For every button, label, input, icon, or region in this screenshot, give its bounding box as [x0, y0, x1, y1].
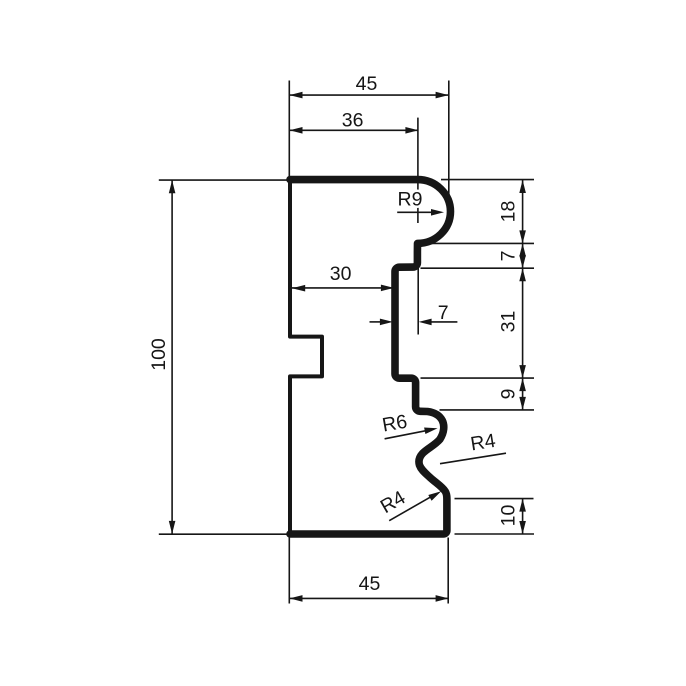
svg-text:100: 100: [148, 338, 170, 371]
svg-text:18: 18: [498, 201, 520, 223]
svg-text:9: 9: [498, 389, 520, 400]
svg-text:R6: R6: [381, 411, 409, 437]
svg-text:10: 10: [498, 505, 520, 527]
svg-text:45: 45: [356, 73, 378, 95]
svg-text:7: 7: [438, 302, 449, 324]
svg-text:30: 30: [330, 263, 352, 285]
svg-text:36: 36: [342, 109, 364, 131]
svg-text:R9: R9: [398, 189, 423, 211]
svg-text:R4: R4: [377, 486, 410, 518]
svg-text:R4: R4: [469, 430, 497, 456]
svg-text:31: 31: [498, 311, 520, 333]
svg-text:7: 7: [498, 251, 520, 262]
svg-text:45: 45: [359, 573, 381, 595]
